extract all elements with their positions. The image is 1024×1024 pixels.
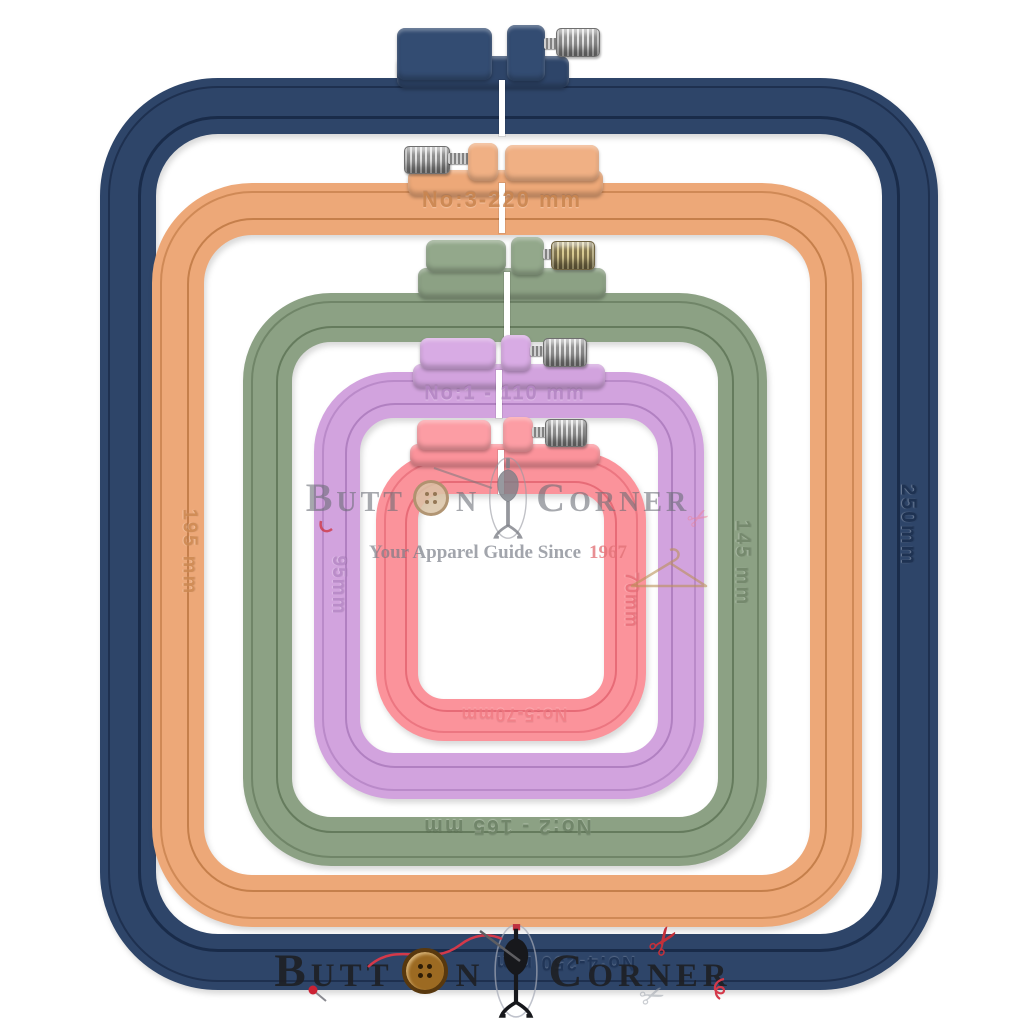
label-green-side-size: 145 mm	[731, 520, 754, 607]
hoop-pink-screw-knob	[545, 419, 587, 447]
hoop-purple-screw-rod	[530, 346, 543, 356]
hoop-pink	[376, 452, 646, 741]
hoop-purple-screw-knob	[543, 338, 587, 367]
hoop-green-clamp-bar	[418, 268, 606, 298]
label-green-bottom-size: No:2 - 165 mm	[422, 814, 592, 838]
hoop-navy-screw-knob	[556, 28, 600, 57]
hoop-navy-clamp-post	[507, 25, 545, 81]
label-pink-side-size: 70mm	[621, 572, 642, 628]
hoop-pink-slit	[498, 450, 504, 494]
hoop-orange-screw-knob	[404, 146, 450, 174]
hoop-orange-clamp-block	[505, 145, 599, 181]
hoop-orange-screw-rod	[448, 153, 470, 164]
hoop-pink-screw-rod	[532, 427, 546, 437]
hoop-green-clamp-post	[511, 237, 544, 275]
hoop-green-screw-knob	[551, 241, 595, 270]
hoop-navy-clamp-block	[397, 28, 492, 80]
label-pink-bottom-size: No:5-70mm	[460, 704, 567, 725]
label-orange-top-size: No:3-220 mm	[422, 187, 582, 213]
hoop-pink-outer-seam	[384, 460, 638, 733]
hoop-green-clamp-block	[426, 240, 506, 272]
hoop-pink-inner-seam	[405, 481, 617, 712]
hoop-pink-clamp-block	[417, 420, 491, 450]
label-purple-top-size: No:1 - 110 mm	[424, 383, 586, 406]
hoop-green-slit	[504, 272, 510, 342]
label-navy-side-size: 250mm	[896, 484, 920, 566]
embroidery-hoops-product-photo: 250mm No:4-250 mm No:3-220 mm 195 mm No:…	[0, 0, 1024, 1024]
hoop-pink-clamp-post	[503, 417, 533, 452]
hoop-navy-slit	[499, 80, 505, 136]
label-purple-side-size: 95mm	[327, 556, 349, 615]
label-orange-side-size: 195 mm	[178, 509, 201, 596]
hoop-purple-clamp-post	[501, 335, 531, 371]
hoop-purple-clamp-block	[420, 338, 496, 369]
hoop-orange-clamp-post	[468, 143, 498, 181]
label-navy-bottom-size: No:4-250 mm	[494, 951, 635, 973]
